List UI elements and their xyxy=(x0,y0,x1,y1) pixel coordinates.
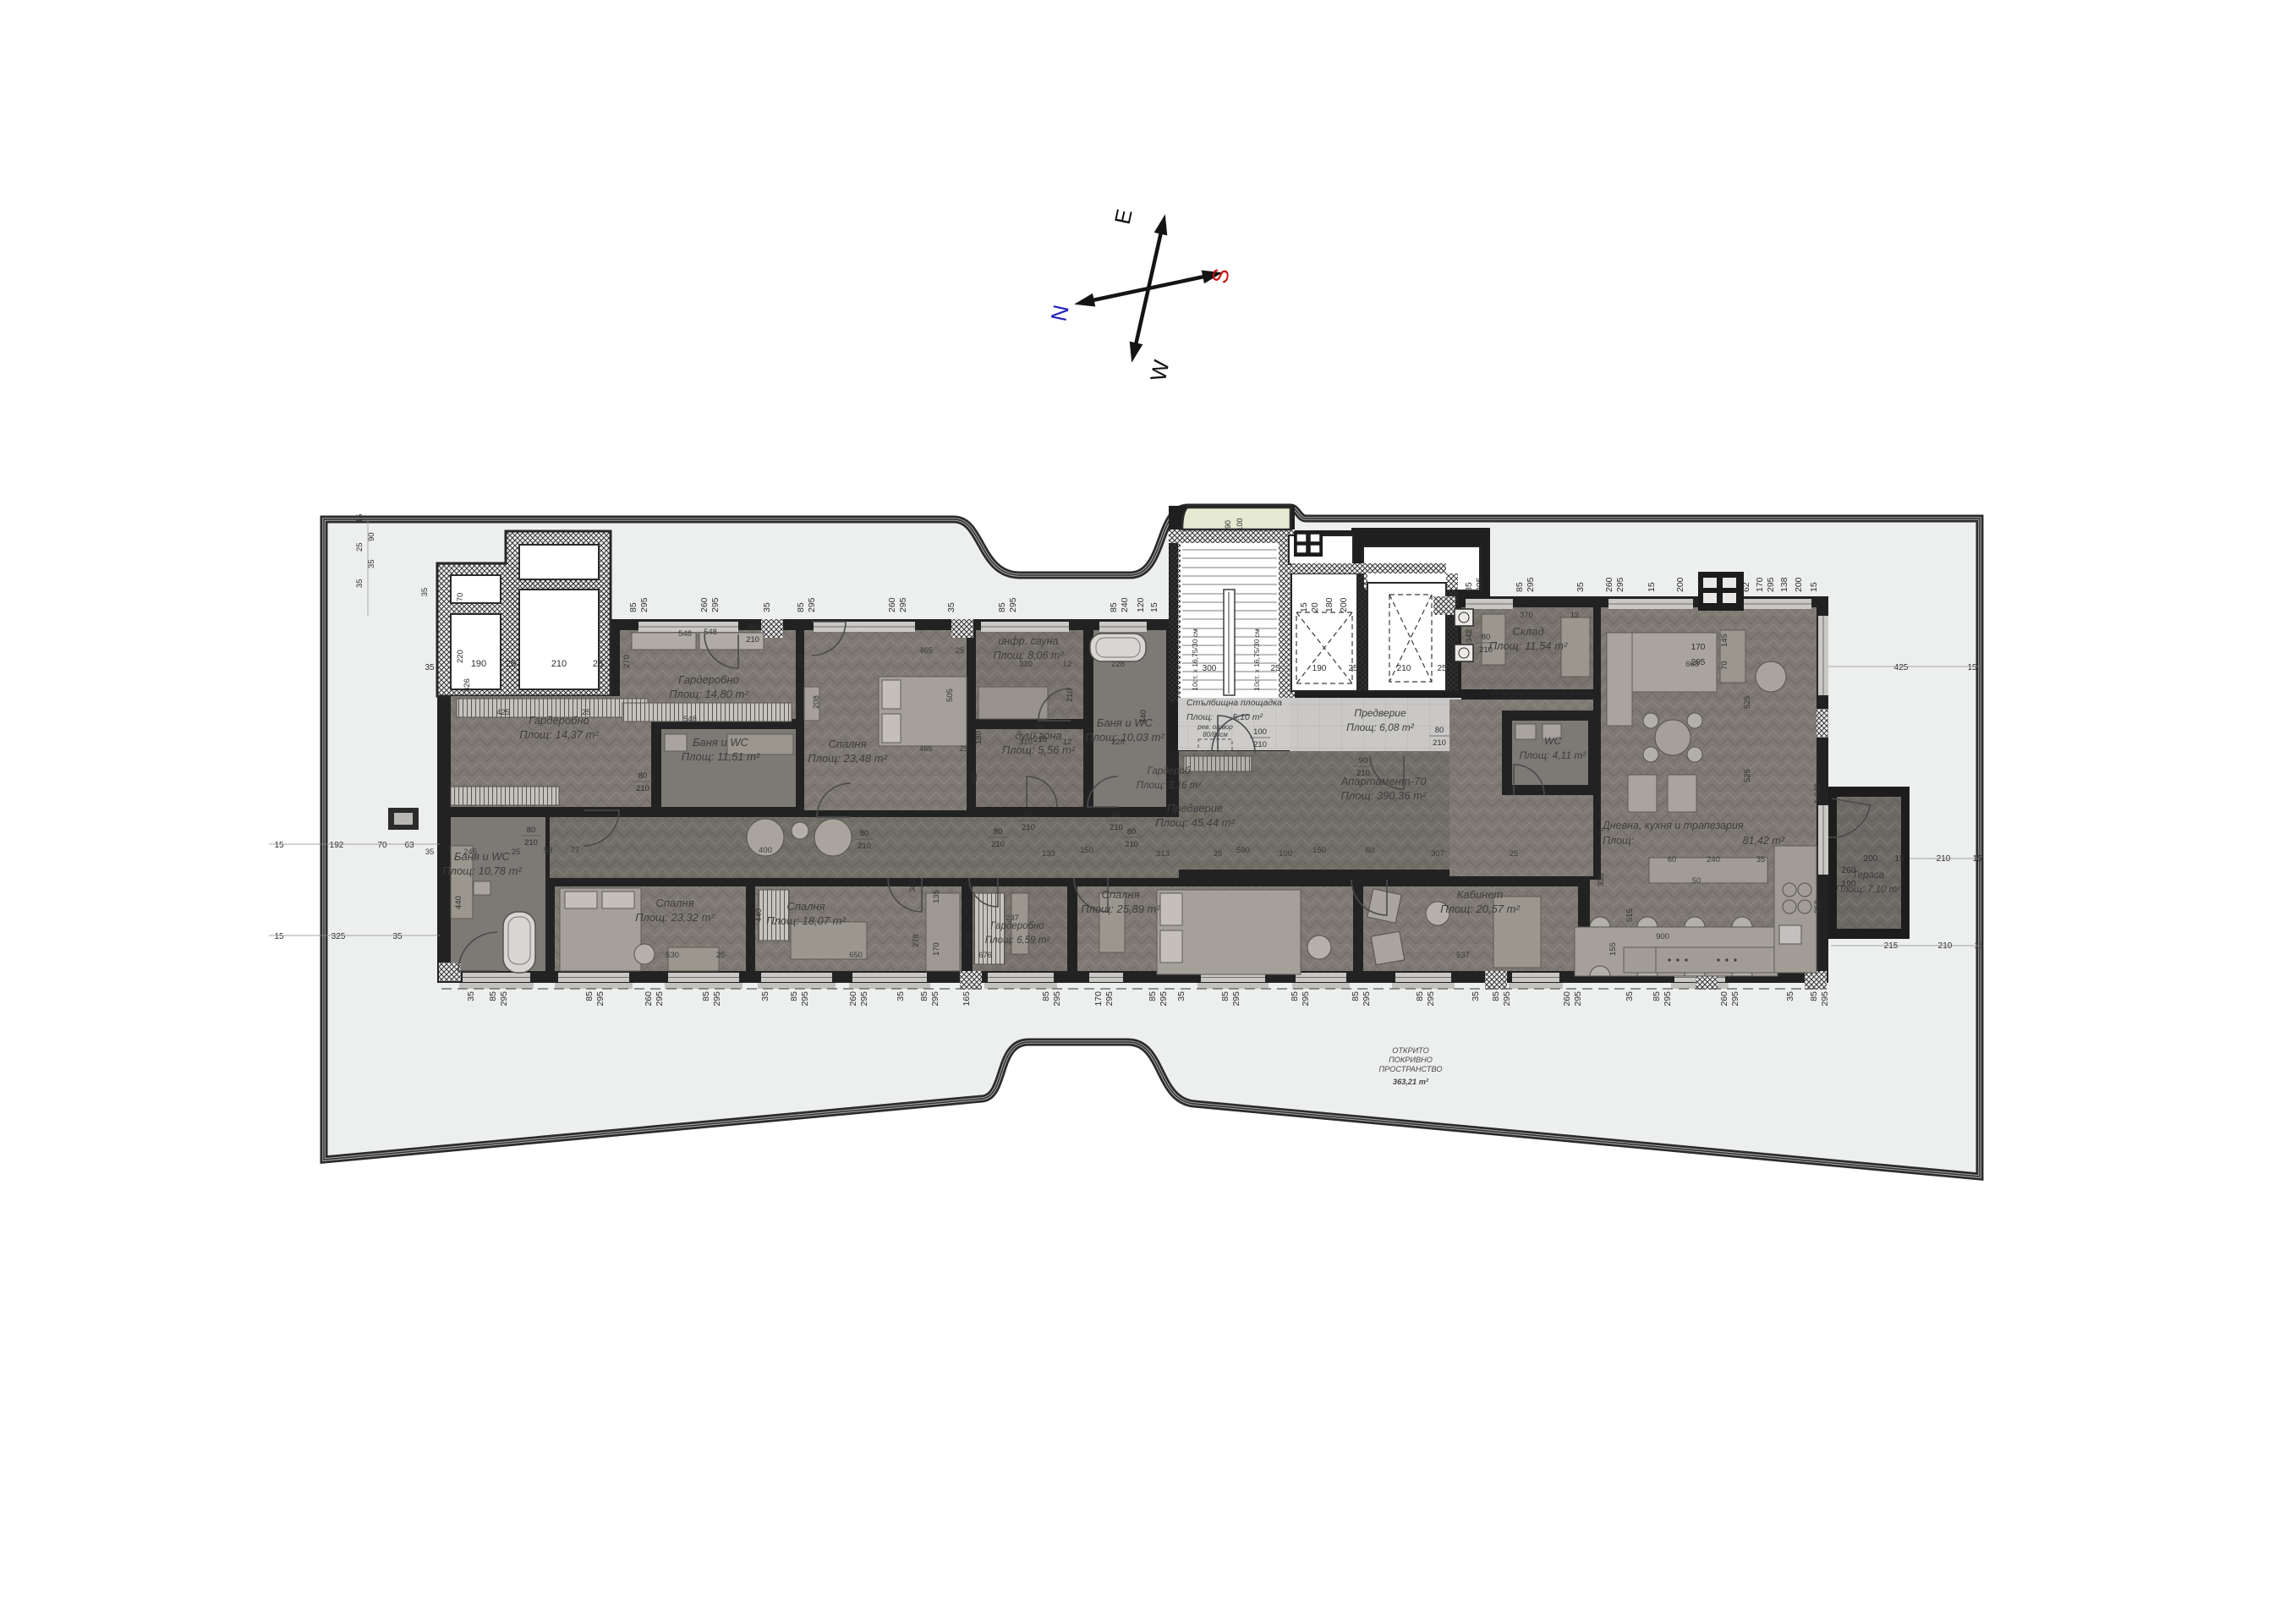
svg-text:Площ: 23,48 m²: Площ: 23,48 m² xyxy=(808,752,887,765)
svg-text:425: 425 xyxy=(496,708,510,717)
svg-text:15: 15 xyxy=(274,841,284,850)
svg-text:170: 170 xyxy=(1755,577,1765,592)
svg-text:Площ: 6,08 m²: Площ: 6,08 m² xyxy=(1346,721,1415,733)
svg-text:295: 295 xyxy=(1615,577,1625,592)
svg-text:15: 15 xyxy=(1299,602,1309,612)
svg-text:537: 537 xyxy=(1456,951,1470,960)
svg-text:650: 650 xyxy=(849,951,863,960)
svg-text:85: 85 xyxy=(1415,991,1425,1001)
svg-text:295: 295 xyxy=(1052,991,1062,1007)
svg-text:548: 548 xyxy=(683,715,697,724)
svg-text:35: 35 xyxy=(760,991,770,1001)
svg-text:210: 210 xyxy=(1253,740,1267,749)
svg-text:25: 25 xyxy=(1510,849,1519,859)
svg-text:425: 425 xyxy=(1894,663,1909,672)
svg-text:81,42 m²: 81,42 m² xyxy=(1743,835,1785,847)
svg-text:260: 260 xyxy=(887,597,897,612)
svg-text:85: 85 xyxy=(997,602,1007,612)
svg-text:165: 165 xyxy=(962,991,972,1007)
svg-text:Площ:: Площ: xyxy=(1603,835,1634,847)
svg-text:85: 85 xyxy=(488,991,498,1001)
svg-text:Площ: 6,59 m²: Площ: 6,59 m² xyxy=(985,935,1051,946)
svg-text:85: 85 xyxy=(628,602,638,612)
svg-text:35: 35 xyxy=(1785,991,1795,1001)
svg-text:383: 383 xyxy=(908,879,918,892)
svg-text:25: 25 xyxy=(1348,664,1358,673)
svg-text:25: 25 xyxy=(1437,664,1447,673)
svg-text:15: 15 xyxy=(1894,854,1904,864)
svg-text:548: 548 xyxy=(704,628,717,637)
svg-text:210: 210 xyxy=(1125,840,1138,849)
svg-text:35: 35 xyxy=(896,991,906,1001)
svg-text:295: 295 xyxy=(595,991,606,1007)
svg-text:100: 100 xyxy=(1253,727,1267,737)
svg-text:515: 515 xyxy=(1625,908,1635,922)
svg-text:80: 80 xyxy=(1112,810,1121,820)
svg-text:85: 85 xyxy=(1652,991,1662,1001)
svg-text:465: 465 xyxy=(919,744,933,754)
svg-text:150: 150 xyxy=(1080,846,1093,855)
svg-text:278: 278 xyxy=(964,934,973,947)
svg-text:313: 313 xyxy=(1156,849,1170,859)
svg-text:25: 25 xyxy=(512,848,521,857)
svg-text:Тераса: Тераса xyxy=(1852,870,1884,881)
svg-text:Площ: 25,89 m²: Площ: 25,89 m² xyxy=(1081,903,1160,915)
svg-text:рев. отвор: рев. отвор xyxy=(1197,723,1233,731)
svg-text:325: 325 xyxy=(332,932,346,941)
svg-text:295: 295 xyxy=(712,991,722,1007)
svg-text:295: 295 xyxy=(1008,597,1018,612)
svg-text:25: 25 xyxy=(355,542,364,551)
svg-text:Площ: 11,54 m²: Площ: 11,54 m² xyxy=(1489,639,1568,652)
svg-text:295: 295 xyxy=(710,597,721,612)
svg-text:210: 210 xyxy=(636,784,649,793)
svg-text:295: 295 xyxy=(655,991,665,1007)
svg-text:35: 35 xyxy=(425,663,435,672)
svg-text:12: 12 xyxy=(1063,738,1072,747)
svg-text:Предверие: Предверие xyxy=(1167,802,1223,815)
svg-text:210: 210 xyxy=(858,842,871,851)
svg-text:90: 90 xyxy=(367,532,376,541)
svg-text:307: 307 xyxy=(1431,849,1444,859)
svg-text:Предверие: Предверие xyxy=(1354,707,1406,719)
svg-text:80: 80 xyxy=(1024,810,1033,820)
svg-text:Спалня: Спалня xyxy=(828,738,866,750)
svg-text:85: 85 xyxy=(1041,991,1051,1001)
svg-text:260: 260 xyxy=(1842,866,1856,875)
svg-text:Гардероб: Гардероб xyxy=(1148,766,1191,776)
svg-text:548: 548 xyxy=(678,629,692,639)
svg-text:310: 310 xyxy=(1019,738,1033,747)
svg-text:1 040: 1 040 xyxy=(1813,783,1822,804)
svg-text:237: 237 xyxy=(1006,913,1019,923)
svg-text:100: 100 xyxy=(1279,849,1292,859)
svg-text:Спалня: Спалня xyxy=(1101,888,1139,901)
svg-text:590: 590 xyxy=(1236,846,1250,855)
svg-text:Кабинет: Кабинет xyxy=(1457,888,1504,901)
svg-text:85: 85 xyxy=(1290,991,1300,1001)
svg-text:210: 210 xyxy=(1356,769,1370,778)
svg-text:85: 85 xyxy=(1491,991,1501,1001)
svg-text:210: 210 xyxy=(1110,823,1123,832)
svg-text:Площ: 18,07 m²: Площ: 18,07 m² xyxy=(766,914,846,927)
svg-text:400: 400 xyxy=(759,846,772,855)
svg-text:200: 200 xyxy=(1675,577,1685,592)
svg-text:70: 70 xyxy=(377,841,387,850)
svg-text:90: 90 xyxy=(1224,520,1232,529)
svg-text:295: 295 xyxy=(1663,991,1673,1007)
svg-text:215: 215 xyxy=(1884,941,1899,951)
svg-text:85: 85 xyxy=(1148,991,1158,1001)
svg-text:295: 295 xyxy=(1730,991,1740,1007)
svg-text:208: 208 xyxy=(812,695,821,709)
svg-text:25: 25 xyxy=(593,659,603,669)
svg-text:295: 295 xyxy=(1362,991,1372,1007)
svg-text:35: 35 xyxy=(1176,991,1186,1001)
svg-text:35: 35 xyxy=(1471,991,1481,1001)
svg-text:Площ: 45,44 m²: Площ: 45,44 m² xyxy=(1155,816,1235,829)
svg-text:120: 120 xyxy=(1136,597,1146,612)
svg-text:10ст. x 16,75/30 см: 10ст. x 16,75/30 см xyxy=(1191,628,1199,691)
svg-text:60: 60 xyxy=(1366,846,1375,855)
svg-text:530: 530 xyxy=(666,951,679,960)
svg-text:200: 200 xyxy=(1339,597,1349,612)
svg-text:62: 62 xyxy=(970,773,979,782)
svg-text:245: 245 xyxy=(463,848,477,857)
svg-text:50: 50 xyxy=(1692,876,1701,886)
svg-text:Площ: 23,32 m²: Площ: 23,32 m² xyxy=(635,911,715,924)
svg-text:ПОКРИВНО: ПОКРИВНО xyxy=(1389,1056,1433,1064)
svg-text:85: 85 xyxy=(1809,991,1819,1001)
svg-text:25: 25 xyxy=(716,951,726,960)
svg-text:20: 20 xyxy=(1310,602,1320,612)
svg-text:35: 35 xyxy=(392,932,403,941)
svg-text:15: 15 xyxy=(1809,582,1819,592)
svg-text:80: 80 xyxy=(994,827,1003,837)
svg-text:295: 295 xyxy=(930,991,940,1007)
svg-text:85: 85 xyxy=(796,602,806,612)
svg-text:295: 295 xyxy=(499,991,509,1007)
svg-text:133: 133 xyxy=(1042,849,1055,859)
svg-text:240: 240 xyxy=(1707,855,1720,864)
svg-text:80: 80 xyxy=(1127,827,1137,837)
svg-text:210: 210 xyxy=(1433,738,1446,748)
svg-text:295: 295 xyxy=(1475,577,1485,592)
svg-text:210: 210 xyxy=(1022,823,1035,832)
svg-text:инфр. сауна: инфр. сауна xyxy=(998,635,1058,647)
svg-text:35: 35 xyxy=(762,602,772,612)
svg-text:Склад: Склад xyxy=(1512,625,1543,638)
svg-text:260: 260 xyxy=(848,991,858,1007)
svg-text:170: 170 xyxy=(1093,991,1104,1007)
svg-text:85: 85 xyxy=(789,991,799,1001)
svg-text:190: 190 xyxy=(1312,664,1327,673)
svg-text:15: 15 xyxy=(1972,854,1982,864)
svg-text:Площ: 14,80 m²: Площ: 14,80 m² xyxy=(669,688,748,700)
svg-text:85: 85 xyxy=(1220,991,1230,1001)
svg-text:85: 85 xyxy=(1464,582,1474,592)
svg-text:370: 370 xyxy=(1520,611,1533,620)
svg-text:363,21 m²: 363,21 m² xyxy=(1393,1078,1429,1086)
svg-text:210: 210 xyxy=(551,659,567,669)
svg-text:210: 210 xyxy=(1033,735,1047,744)
svg-text:Спалня: Спалня xyxy=(655,897,693,909)
svg-text:260: 260 xyxy=(1604,577,1614,592)
svg-text:170: 170 xyxy=(1691,643,1706,652)
svg-text:260: 260 xyxy=(1719,991,1729,1007)
svg-text:62: 62 xyxy=(1741,582,1751,592)
svg-text:15: 15 xyxy=(1647,582,1657,592)
svg-text:Спалня: Спалня xyxy=(786,900,825,913)
svg-text:220: 220 xyxy=(456,650,465,663)
svg-text:260: 260 xyxy=(1562,991,1572,1007)
svg-text:295: 295 xyxy=(807,597,817,612)
svg-text:135: 135 xyxy=(932,890,941,903)
svg-text:80: 80 xyxy=(748,623,758,632)
svg-text:90: 90 xyxy=(1359,756,1368,765)
svg-text:300: 300 xyxy=(1203,664,1217,673)
svg-text:35: 35 xyxy=(1756,855,1766,864)
svg-text:Площ: 20,57 m²: Площ: 20,57 m² xyxy=(1440,903,1520,915)
svg-text:200: 200 xyxy=(1864,854,1878,864)
svg-text:15: 15 xyxy=(1967,663,1977,672)
svg-text:295: 295 xyxy=(1231,991,1241,1007)
svg-text:676: 676 xyxy=(978,951,992,960)
svg-text:15: 15 xyxy=(274,932,284,941)
svg-text:228: 228 xyxy=(1111,738,1125,747)
svg-text:210: 210 xyxy=(1397,664,1411,673)
svg-text:25: 25 xyxy=(1270,664,1280,673)
svg-text:ПРОСТРАНСТВО: ПРОСТРАНСТВО xyxy=(1378,1065,1442,1073)
svg-text:Площ: 10,78 m²: Площ: 10,78 m² xyxy=(442,864,522,877)
svg-text:80: 80 xyxy=(638,771,648,781)
svg-text:210: 210 xyxy=(1937,854,1951,864)
svg-text:35: 35 xyxy=(355,579,364,588)
svg-text:12: 12 xyxy=(1063,660,1072,669)
svg-text:35: 35 xyxy=(1575,582,1586,592)
svg-text:228: 228 xyxy=(1111,660,1125,669)
svg-text:295: 295 xyxy=(1820,991,1830,1007)
svg-text:210: 210 xyxy=(1479,645,1493,655)
svg-text:25: 25 xyxy=(1214,849,1223,859)
svg-text:440: 440 xyxy=(454,896,463,909)
svg-text:25: 25 xyxy=(582,708,591,717)
svg-text:900: 900 xyxy=(1656,932,1669,941)
svg-text:85: 85 xyxy=(701,991,711,1001)
svg-text:ОТКРИТО: ОТКРИТО xyxy=(1392,1046,1428,1055)
svg-text:Площ: 11,51 m²: Площ: 11,51 m² xyxy=(682,750,760,763)
svg-text:295: 295 xyxy=(1573,991,1583,1007)
svg-text:155: 155 xyxy=(1608,942,1618,956)
svg-text:295: 295 xyxy=(1301,991,1311,1007)
svg-text:330: 330 xyxy=(1597,873,1606,886)
svg-text:63: 63 xyxy=(404,841,414,850)
svg-text:35: 35 xyxy=(420,588,430,597)
svg-text:180: 180 xyxy=(974,731,984,744)
svg-text:295: 295 xyxy=(898,597,908,612)
svg-text:35: 35 xyxy=(425,848,435,857)
svg-text:210: 210 xyxy=(1066,689,1075,702)
svg-text:Стълбищна площадка: Стълбищна площадка xyxy=(1186,698,1282,708)
svg-text:25: 25 xyxy=(506,659,516,669)
svg-text:505: 505 xyxy=(945,689,955,702)
svg-text:15: 15 xyxy=(1974,941,1984,951)
svg-text:210: 210 xyxy=(1938,941,1953,951)
svg-text:15: 15 xyxy=(1149,602,1159,612)
svg-text:85: 85 xyxy=(1109,602,1119,612)
svg-text:25: 25 xyxy=(960,744,969,754)
svg-text:10ст. x 16,75/30 см: 10ст. x 16,75/30 см xyxy=(1252,628,1261,691)
svg-text:15: 15 xyxy=(355,513,364,523)
svg-text:145: 145 xyxy=(1720,634,1729,647)
svg-text:180: 180 xyxy=(1324,597,1334,612)
svg-text:295: 295 xyxy=(639,597,649,612)
svg-text:Гардеробно: Гардеробно xyxy=(529,714,589,727)
svg-text:80: 80 xyxy=(1036,722,1045,732)
svg-text:440: 440 xyxy=(754,908,764,922)
svg-text:525: 525 xyxy=(1743,695,1752,709)
svg-text:Баня и WC: Баня и WC xyxy=(693,736,749,749)
svg-text:Дневна, кухня и трапезария: Дневна, кухня и трапезария xyxy=(1601,820,1744,831)
svg-text:Площ:: Площ: xyxy=(1186,712,1213,722)
svg-text:85: 85 xyxy=(1351,991,1361,1001)
svg-text:70: 70 xyxy=(456,593,465,602)
svg-text:85: 85 xyxy=(1515,582,1525,592)
svg-text:85: 85 xyxy=(584,991,595,1001)
svg-text:100: 100 xyxy=(1236,518,1244,530)
svg-text:80: 80 xyxy=(1435,726,1444,735)
svg-text:Апартамент-70: Апартамент-70 xyxy=(1340,775,1427,787)
svg-text:35: 35 xyxy=(367,559,376,568)
svg-text:210: 210 xyxy=(991,840,1005,849)
svg-text:138: 138 xyxy=(1779,577,1789,592)
svg-text:192: 192 xyxy=(330,841,344,850)
svg-text:210: 210 xyxy=(524,838,538,848)
svg-text:295: 295 xyxy=(1104,991,1115,1007)
svg-text:278: 278 xyxy=(912,934,921,947)
svg-text:80: 80 xyxy=(1482,633,1491,642)
svg-text:Баня и WC: Баня и WC xyxy=(454,850,511,863)
svg-text:35: 35 xyxy=(946,602,956,612)
svg-text:295: 295 xyxy=(800,991,810,1007)
svg-text:295: 295 xyxy=(859,991,869,1007)
svg-text:150: 150 xyxy=(1312,846,1326,855)
svg-text:295: 295 xyxy=(1766,577,1776,592)
svg-text:525: 525 xyxy=(1743,769,1752,782)
svg-text:77: 77 xyxy=(571,846,580,855)
svg-text:260: 260 xyxy=(644,991,654,1007)
svg-text:35: 35 xyxy=(1625,991,1635,1001)
svg-text:Площ: 14,37 m²: Площ: 14,37 m² xyxy=(519,728,599,741)
svg-text:295: 295 xyxy=(1426,991,1436,1007)
svg-text:Площ: 10,03 m²: Площ: 10,03 m² xyxy=(1085,731,1164,743)
svg-text:70: 70 xyxy=(1720,661,1729,670)
svg-text:Площ: 390,36 m²: Площ: 390,36 m² xyxy=(1341,789,1427,802)
svg-text:60: 60 xyxy=(1668,855,1677,864)
svg-text:342: 342 xyxy=(1465,629,1474,643)
svg-text:170: 170 xyxy=(932,942,941,956)
svg-text:270: 270 xyxy=(797,655,806,668)
svg-text:Площ: 4,11 m²: Площ: 4,11 m² xyxy=(1520,749,1587,761)
svg-text:295: 295 xyxy=(1159,991,1169,1007)
svg-text:240: 240 xyxy=(1120,597,1130,612)
svg-text:440: 440 xyxy=(1139,710,1148,723)
svg-text:250: 250 xyxy=(1813,900,1822,913)
svg-text:80: 80 xyxy=(527,826,536,835)
svg-text:210: 210 xyxy=(746,635,759,645)
svg-text:260: 260 xyxy=(699,597,710,612)
svg-text:668: 668 xyxy=(1685,660,1699,669)
svg-text:80: 80 xyxy=(860,829,869,838)
svg-text:190: 190 xyxy=(1842,880,1856,889)
svg-text:465: 465 xyxy=(919,646,933,656)
svg-text:310: 310 xyxy=(1019,660,1033,669)
svg-text:270: 270 xyxy=(622,655,632,668)
svg-text:200: 200 xyxy=(1794,577,1804,592)
svg-text:295: 295 xyxy=(1502,991,1512,1007)
svg-text:Площ: 3,16 m²: Площ: 3,16 m² xyxy=(1137,781,1203,791)
svg-text:85: 85 xyxy=(919,991,929,1001)
svg-text:Гардеробно: Гардеробно xyxy=(678,673,739,686)
svg-text:295: 295 xyxy=(1526,577,1536,592)
svg-text:190: 190 xyxy=(471,659,486,669)
svg-text:WC: WC xyxy=(1544,735,1561,747)
svg-text:326: 326 xyxy=(463,678,472,692)
svg-text:25: 25 xyxy=(956,646,965,656)
svg-text:53: 53 xyxy=(544,846,553,855)
svg-text:35: 35 xyxy=(466,991,476,1001)
svg-text:12: 12 xyxy=(1570,611,1580,620)
